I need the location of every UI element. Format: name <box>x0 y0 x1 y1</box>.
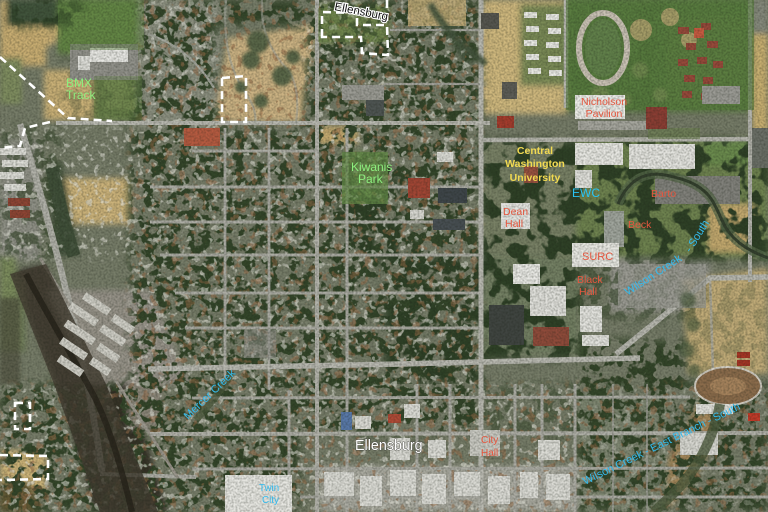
svg-text:Hall: Hall <box>579 286 597 298</box>
svg-text:Hall: Hall <box>505 218 523 230</box>
svg-text:Nicholson: Nicholson <box>581 96 627 108</box>
svg-text:Central: Central <box>517 145 553 157</box>
svg-text:Pavilion: Pavilion <box>586 108 623 120</box>
svg-text:Dean: Dean <box>503 206 528 218</box>
svg-text:SURC: SURC <box>582 251 613 263</box>
svg-text:Barto: Barto <box>651 188 676 200</box>
svg-text:University: University <box>510 172 561 184</box>
svg-text:Twin: Twin <box>259 483 279 494</box>
svg-text:EWC: EWC <box>572 186 600 200</box>
svg-text:City: City <box>262 495 279 506</box>
svg-text:Ellensburg: Ellensburg <box>355 438 423 454</box>
svg-text:Track: Track <box>66 88 97 102</box>
svg-text:Park: Park <box>358 172 384 186</box>
svg-text:Beck: Beck <box>628 219 652 231</box>
svg-text:Black: Black <box>577 274 603 286</box>
svg-text:Hall: Hall <box>481 448 498 459</box>
svg-text:City: City <box>481 435 498 446</box>
svg-text:Washington: Washington <box>505 158 565 170</box>
